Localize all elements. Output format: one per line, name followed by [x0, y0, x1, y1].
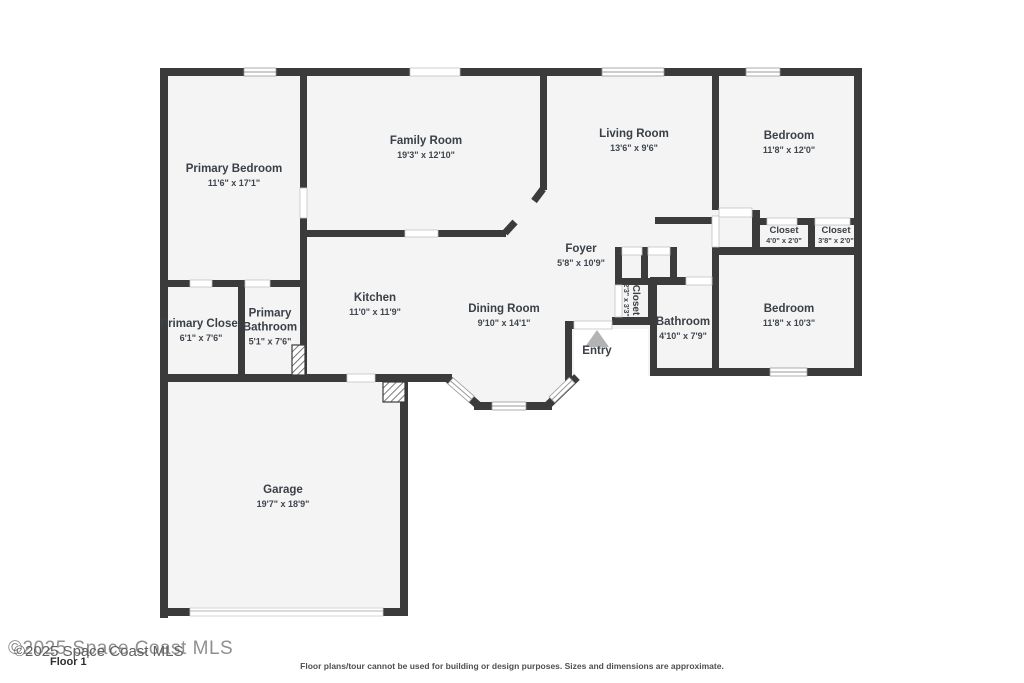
shower-fixture [292, 345, 305, 375]
room-floor-fills [160, 70, 862, 616]
utility-fixture [383, 382, 405, 402]
entry-label: Entry [582, 345, 611, 357]
disclaimer-text: Floor plans/tour cannot be used for buil… [0, 661, 1024, 671]
watermark-text-front: ©2025 Space Coast MLS [14, 643, 183, 660]
floorplan-drawing [0, 0, 1024, 683]
floorplan-page: Primary Bedroom 11'6" x 17'1" Family Roo… [0, 0, 1024, 683]
